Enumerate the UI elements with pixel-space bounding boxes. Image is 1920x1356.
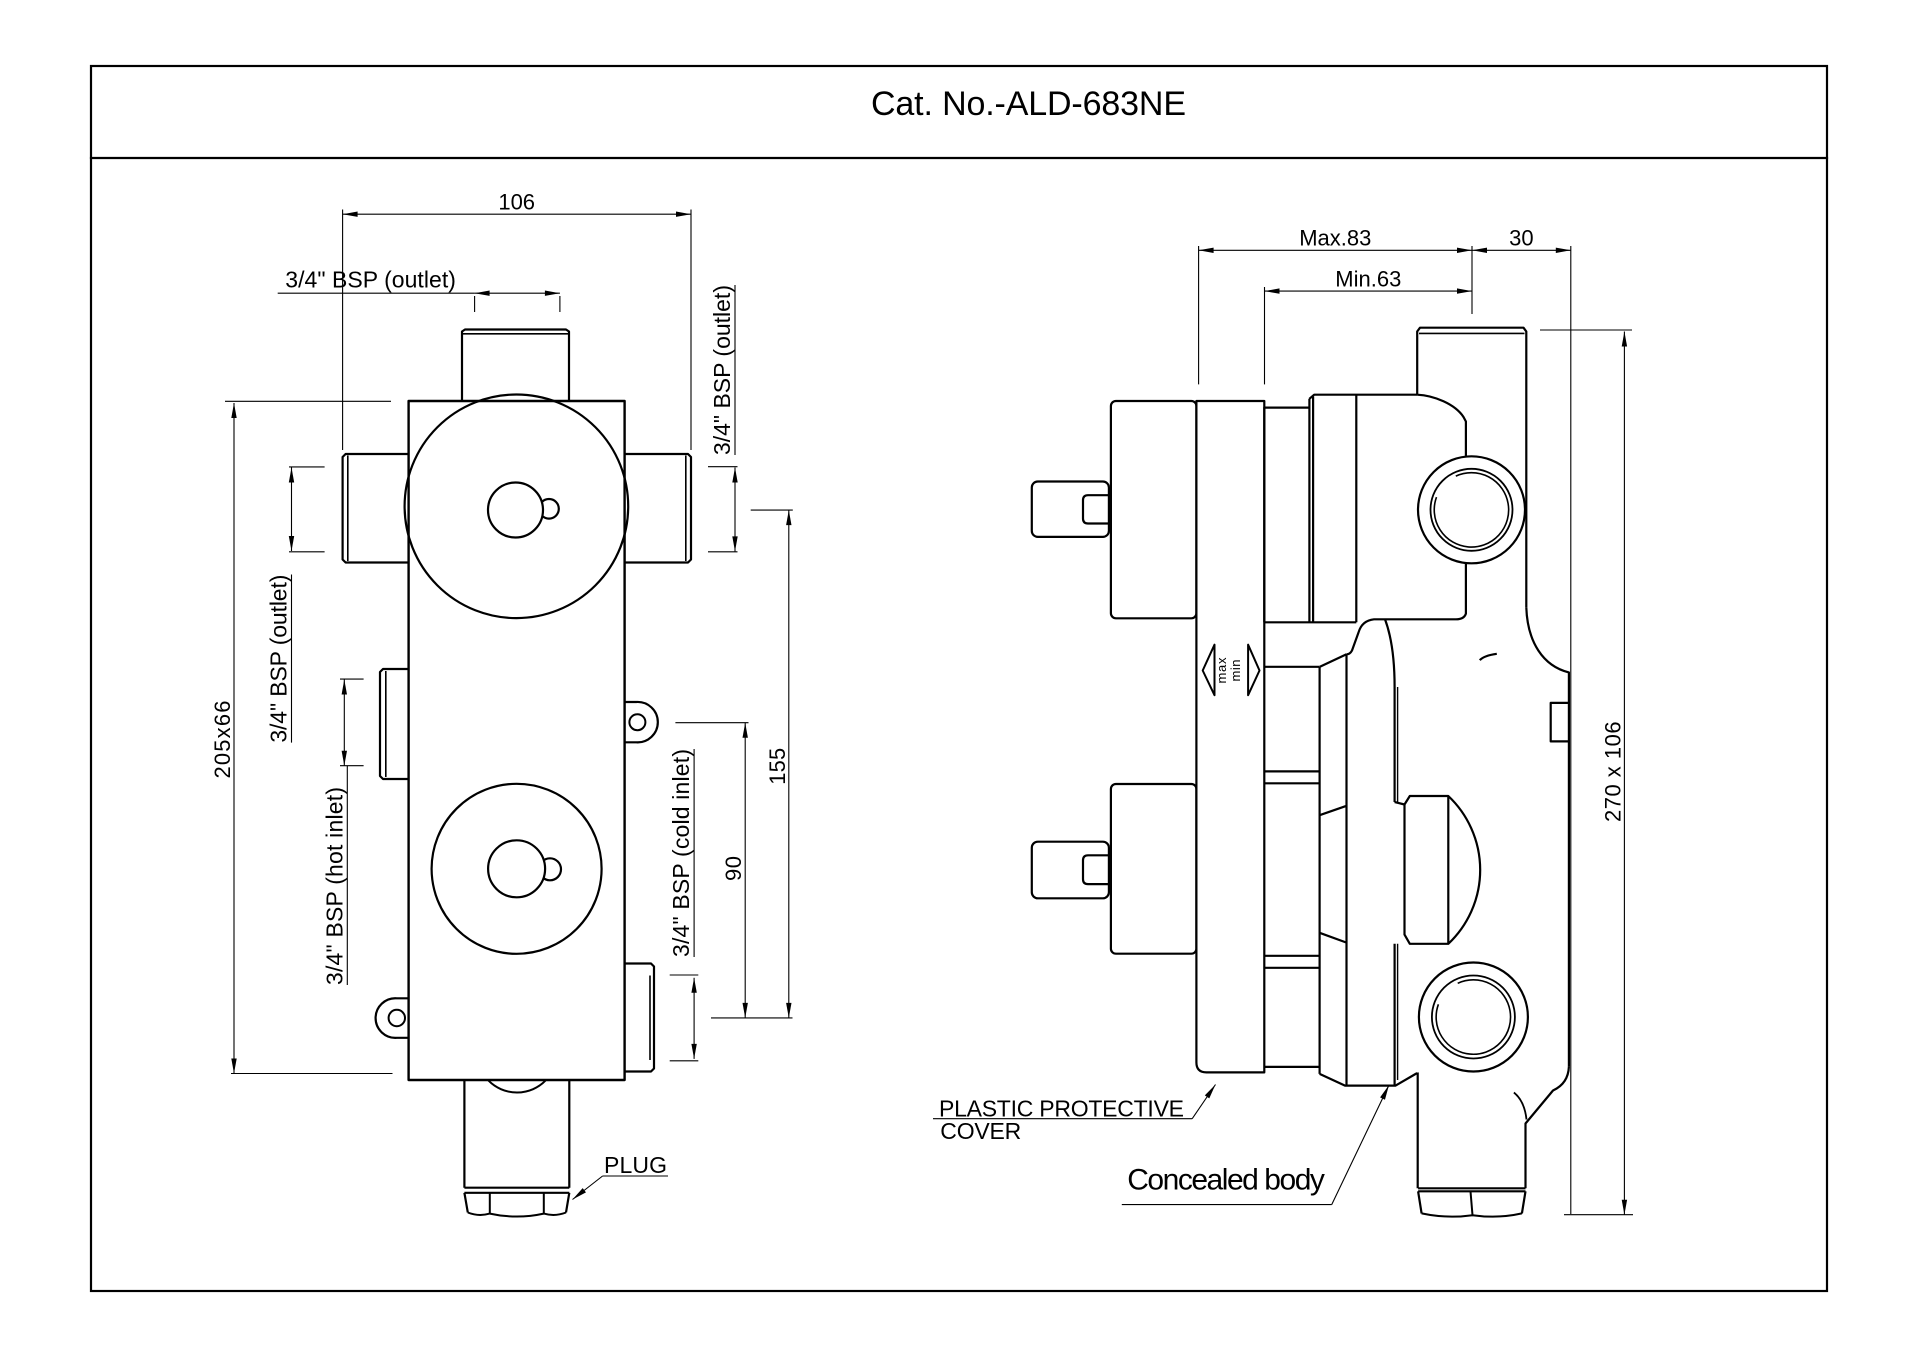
svg-text:max: max <box>1214 657 1229 684</box>
svg-text:Max.83: Max.83 <box>1299 226 1371 251</box>
svg-text:Concealed body: Concealed body <box>1127 1164 1325 1197</box>
svg-text:3/4" BSP (cold inlet): 3/4" BSP (cold inlet) <box>668 749 694 957</box>
svg-text:PLUG: PLUG <box>604 1152 667 1178</box>
svg-text:3/4" BSP (outlet): 3/4" BSP (outlet) <box>266 575 292 743</box>
svg-text:3/4" BSP (hot inlet): 3/4" BSP (hot inlet) <box>321 787 347 985</box>
svg-text:270 x 106: 270 x 106 <box>1601 721 1626 822</box>
svg-text:3/4" BSP (outlet): 3/4" BSP (outlet) <box>285 267 456 293</box>
svg-text:min: min <box>1228 660 1243 682</box>
svg-text:Cat. No.-ALD-683NE: Cat. No.-ALD-683NE <box>871 85 1186 123</box>
svg-text:155: 155 <box>765 748 790 785</box>
svg-text:205x66: 205x66 <box>210 701 235 779</box>
svg-text:3/4" BSP (outlet): 3/4" BSP (outlet) <box>709 285 735 455</box>
svg-text:106: 106 <box>498 190 535 215</box>
svg-text:90: 90 <box>721 856 746 881</box>
svg-text:COVER: COVER <box>940 1118 1021 1144</box>
svg-text:Min.63: Min.63 <box>1335 267 1401 292</box>
svg-text:30: 30 <box>1509 226 1533 251</box>
